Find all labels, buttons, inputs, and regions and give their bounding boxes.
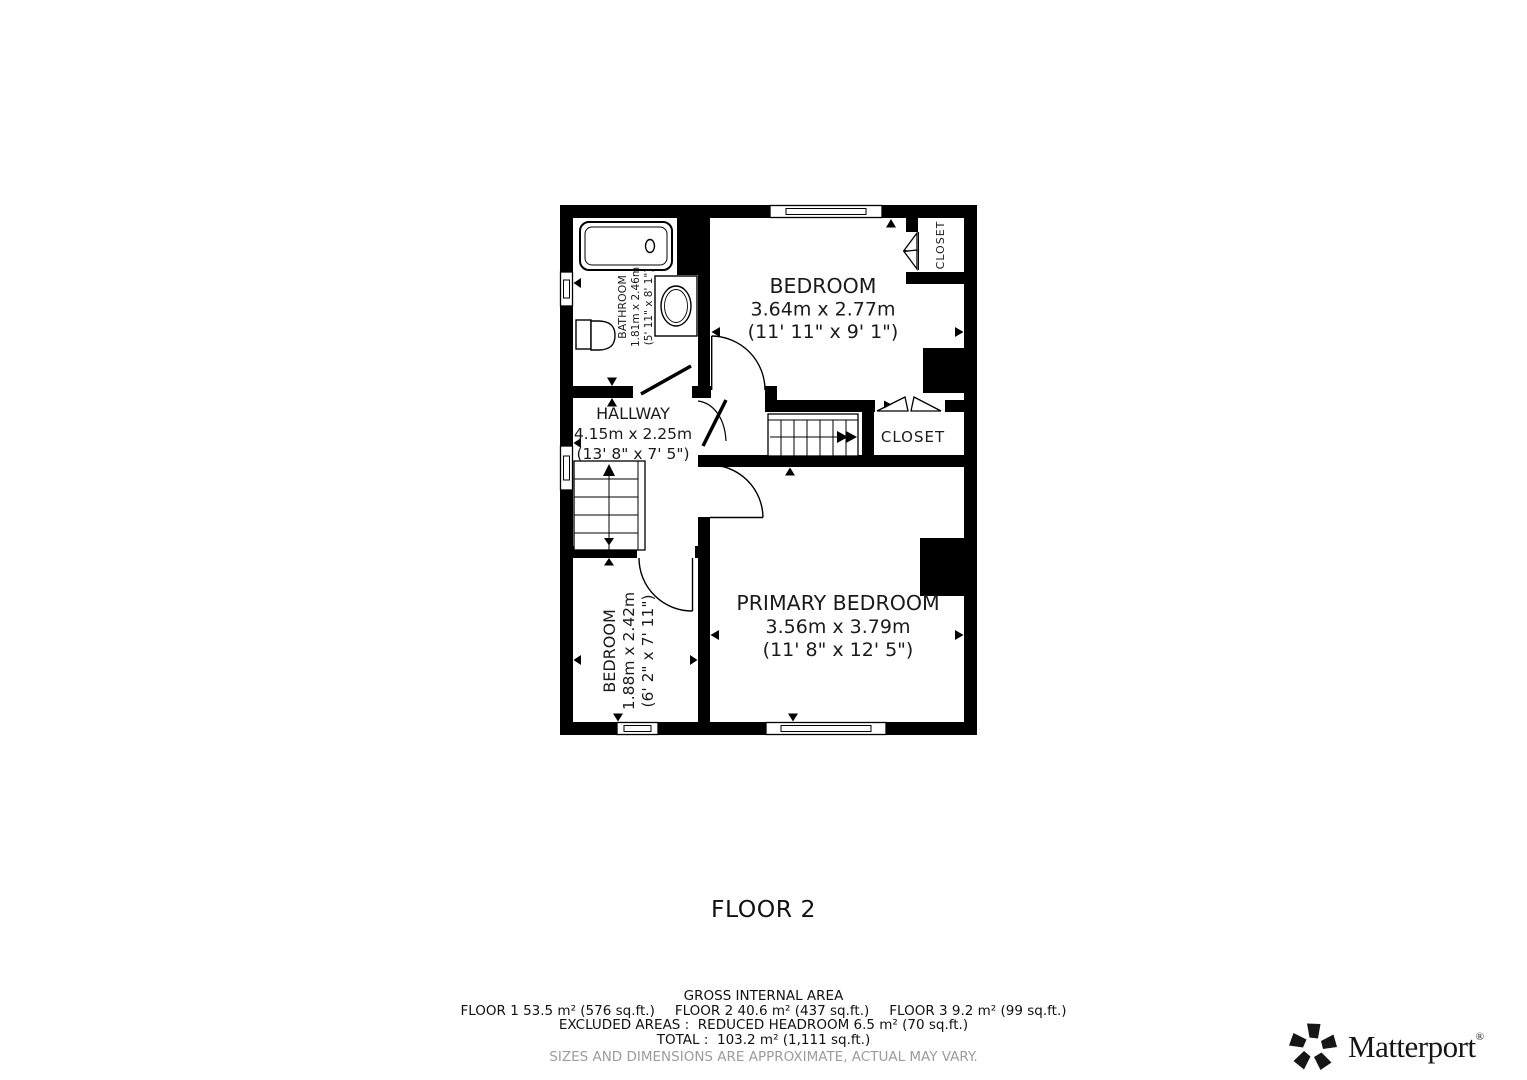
arrow-right-icon: [955, 630, 964, 640]
chimney-bedroom: [923, 348, 964, 393]
arrow-left-icon: [574, 278, 582, 288]
window-hallway-left: [561, 446, 573, 490]
label-bedroom-top: BEDROOM 3.64m x 2.77m (11' 11" x 9' 1"): [748, 274, 899, 343]
arrow-up-icon: [785, 468, 795, 476]
bathtub: [580, 222, 672, 270]
room-name: BATHROOM: [616, 275, 629, 339]
arrow-up-icon: [604, 558, 614, 566]
wall-bedroom-bottom-left: [765, 400, 875, 412]
room-name: HALLWAY: [596, 404, 670, 423]
door-bedroom-top: [711, 336, 765, 398]
room-dim-imperial: (11' 8" x 12' 5"): [763, 639, 914, 661]
room-name: CLOSET: [934, 221, 947, 270]
label-closet-top: CLOSET: [934, 221, 947, 270]
label-bedroom-bottom: BEDROOM 1.88m x 2.42m (6' 2" x 7' 11"): [600, 592, 657, 710]
arrow-left-icon: [574, 655, 582, 665]
wall-hall-bedroom-right: [695, 546, 710, 558]
door-stairwell: [698, 400, 726, 446]
arrow-down-icon: [613, 714, 623, 722]
wall-closet-top-bottom: [906, 272, 964, 284]
matterport-pinwheel-icon: [1288, 1022, 1338, 1072]
room-dim-imperial: (13' 8" x 7' 5"): [576, 445, 689, 463]
window-bedroom-bottom: [617, 723, 658, 735]
wall-corridor-bottom: [698, 455, 964, 467]
matterport-logo: Matterport®: [1288, 1022, 1484, 1072]
arrow-down-icon: [788, 714, 798, 722]
arrow-right-icon: [955, 327, 964, 337]
window-bathroom-left: [561, 272, 573, 306]
room-dim-metric: 1.81m x 2.46m: [630, 267, 642, 347]
wall-bathroom-hallway-left: [573, 386, 633, 398]
arrow-down-icon: [607, 378, 617, 387]
wall-closet-top-stub: [906, 218, 918, 232]
door-bathroom: [641, 366, 691, 394]
wall-bathroom-hallway-right: [692, 386, 711, 398]
wall-top: [560, 205, 977, 218]
room-name: CLOSET: [881, 428, 945, 446]
room-name: BEDROOM: [600, 609, 619, 693]
stairs-corridor: [768, 414, 858, 456]
label-primary-bedroom: PRIMARY BEDROOM 3.56m x 3.79m (11' 8" x …: [736, 591, 939, 661]
room-name: BEDROOM: [769, 274, 876, 298]
chimney-primary-bedroom: [920, 538, 964, 596]
label-bathroom: BATHROOM 1.81m x 2.46m (5' 11" x 8' 1"): [616, 267, 655, 347]
registered-mark: ®: [1476, 1031, 1484, 1043]
arrow-right-icon: [690, 655, 698, 665]
window-primary-bedroom: [766, 723, 886, 735]
arrow-up-icon: [886, 219, 896, 228]
room-dim-metric: 4.15m x 2.25m: [574, 425, 692, 443]
room-dim-metric: 1.88m x 2.42m: [620, 592, 638, 710]
floorplan-page: BEDROOM 3.64m x 2.77m (11' 11" x 9' 1") …: [0, 0, 1527, 1080]
label-closet-mid: CLOSET: [881, 428, 945, 446]
matterport-wordmark: Matterport: [1348, 1029, 1476, 1065]
room-dim-imperial: (11' 11" x 9' 1"): [748, 321, 899, 343]
wall-closet-mid-left: [862, 412, 874, 455]
room-dim-imperial: (5' 11" x 8' 1"): [643, 269, 655, 346]
bathtub-drain: [646, 240, 655, 253]
arrow-left-icon: [711, 630, 720, 640]
floor-title: FLOOR 2: [0, 895, 1527, 923]
room-dim-metric: 3.56m x 3.79m: [766, 616, 911, 638]
toilet: [576, 320, 615, 350]
door-primary-bedroom: [698, 465, 763, 518]
sink-vanity: [655, 276, 697, 336]
wall-bedroom-bottom-right: [945, 400, 964, 412]
bifold-door-closet-top: [904, 232, 919, 270]
window-bedroom-top: [770, 206, 882, 218]
wall-bathroom-bedroom: [698, 218, 710, 386]
room-dim-imperial: (6' 2" x 7' 11"): [639, 594, 657, 707]
room-dim-metric: 3.64m x 2.77m: [751, 299, 896, 321]
room-name: PRIMARY BEDROOM: [736, 591, 939, 615]
wall-right: [964, 205, 977, 735]
label-hallway: HALLWAY 4.15m x 2.25m (13' 8" x 7' 5"): [574, 404, 692, 463]
